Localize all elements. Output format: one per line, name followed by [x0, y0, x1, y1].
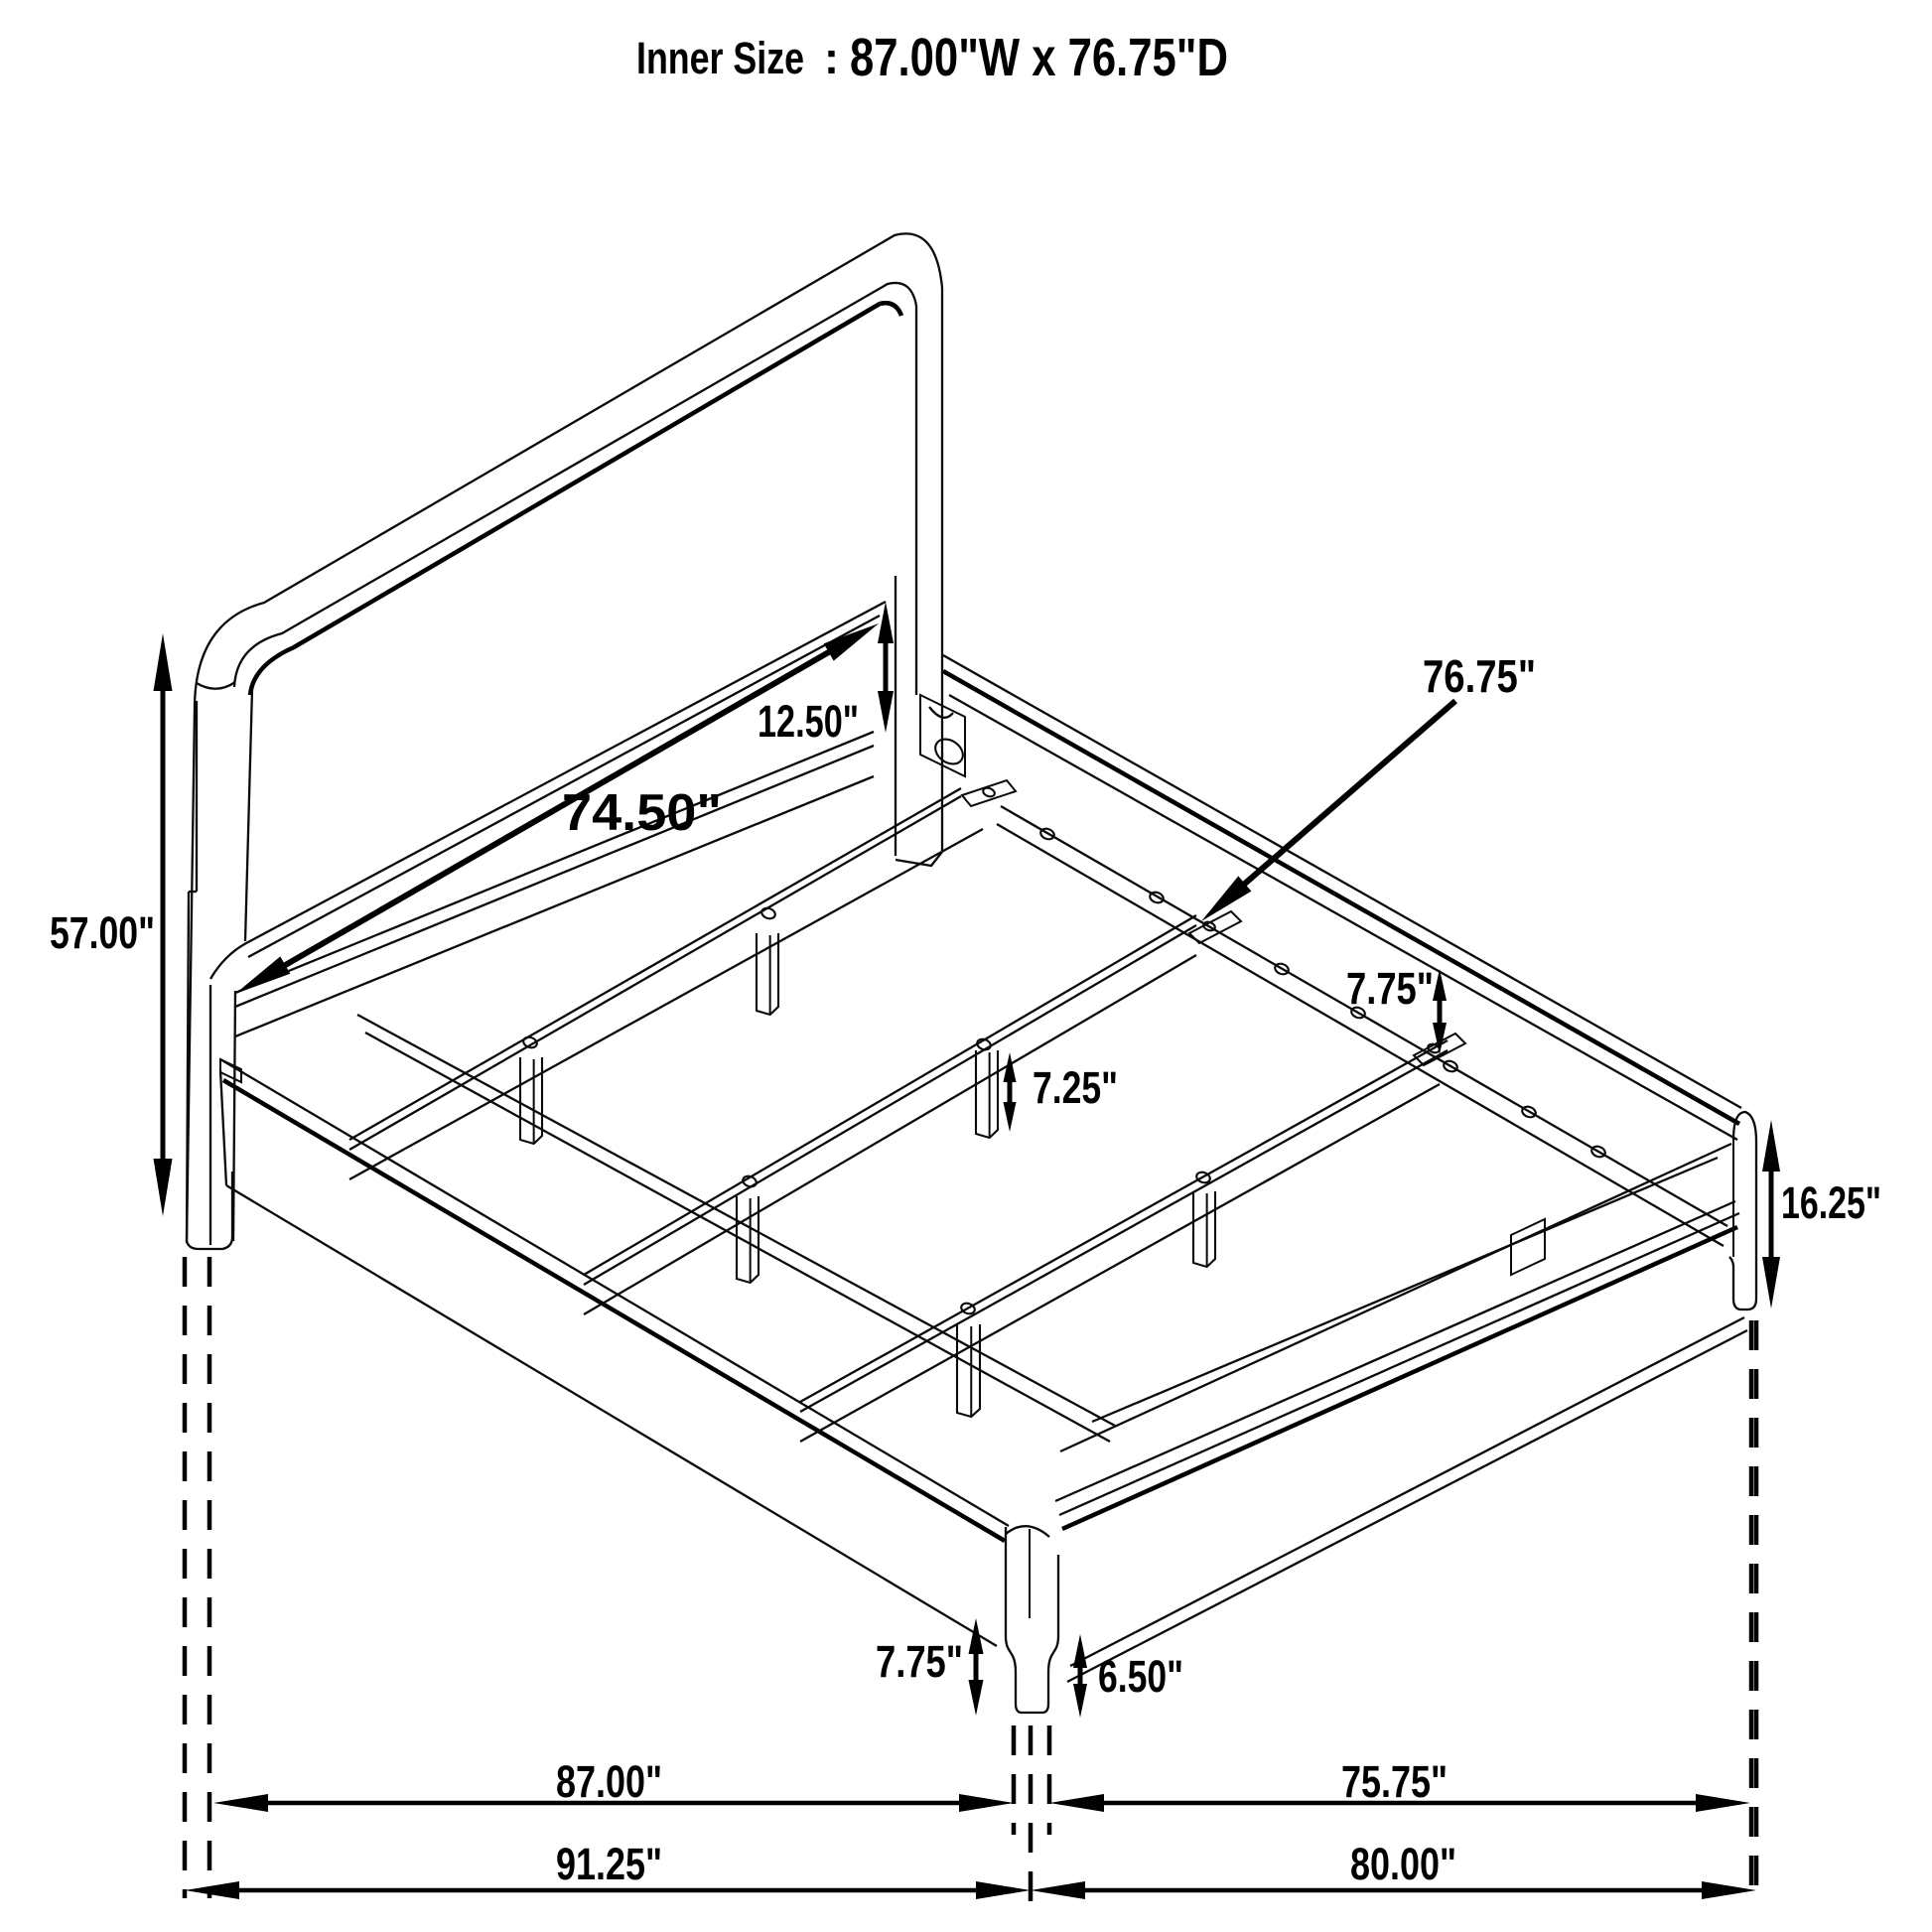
svg-text:12.50": 12.50"	[758, 696, 859, 747]
svg-text:7.75": 7.75"	[1346, 963, 1434, 1014]
svg-text:76.75": 76.75"	[1423, 650, 1536, 702]
svg-text::: :	[824, 33, 839, 83]
svg-text:91.25": 91.25"	[556, 1839, 662, 1889]
svg-text:87.00"W x 76.75"D: 87.00"W x 76.75"D	[850, 28, 1228, 87]
svg-text:80.00": 80.00"	[1350, 1839, 1456, 1889]
svg-text:7.25": 7.25"	[1033, 1062, 1118, 1113]
svg-text:75.75": 75.75"	[1341, 1756, 1448, 1807]
svg-text:87.00": 87.00"	[556, 1756, 662, 1807]
svg-text:16.25": 16.25"	[1781, 1177, 1881, 1228]
svg-text:6.50": 6.50"	[1098, 1651, 1183, 1702]
svg-text:74.50": 74.50"	[562, 784, 722, 842]
svg-text:7.75": 7.75"	[876, 1636, 963, 1687]
svg-text:57.00": 57.00"	[50, 907, 155, 958]
svg-text:Inner Size: Inner Size	[636, 33, 804, 83]
